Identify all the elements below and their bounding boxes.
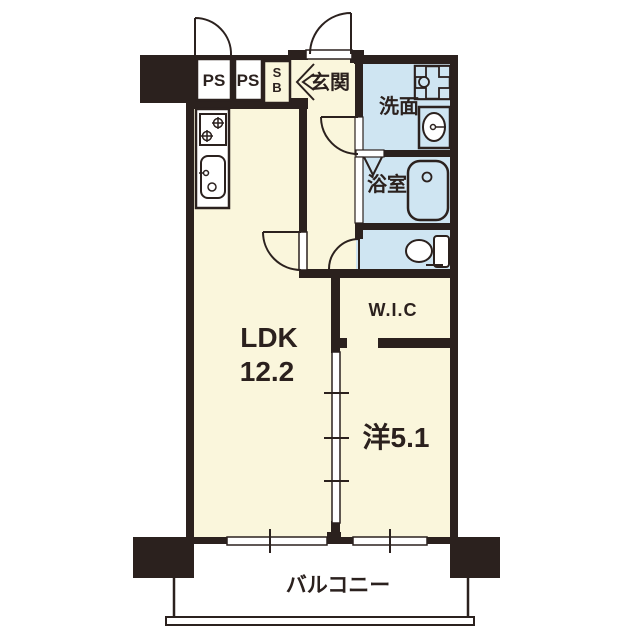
ps2-label: PS bbox=[237, 71, 260, 90]
wall-bottom-right-block bbox=[450, 537, 500, 578]
bath-toilet-fixtures bbox=[406, 161, 449, 267]
floor-plan-drawing: PS PS S B 玄関 洗面 浴室 W.I.C LDK 12.2 洋5.1 バ… bbox=[0, 0, 640, 640]
toilet-bowl bbox=[406, 240, 432, 262]
wall-bottom-left-block bbox=[133, 537, 194, 578]
balcony-label: バルコニー bbox=[286, 574, 391, 597]
bathroom-label: 浴室 bbox=[367, 172, 407, 196]
wall-wic-bottom-stub bbox=[331, 338, 347, 348]
wall-washroom-left bbox=[355, 62, 363, 118]
entrance-label: 玄関 bbox=[310, 70, 350, 94]
washroom-label: 洗面 bbox=[379, 95, 419, 118]
stove-icon bbox=[200, 114, 226, 145]
ldk-door-threshold bbox=[299, 232, 307, 270]
bath-door-threshold bbox=[356, 150, 384, 157]
floor-plan: PS PS S B 玄関 洗面 浴室 W.I.C LDK 12.2 洋5.1 バ… bbox=[0, 0, 640, 640]
wic-label: W.I.C bbox=[369, 300, 418, 320]
wall-entrance-left-stub bbox=[288, 50, 308, 60]
kitchen-sink-icon bbox=[201, 156, 225, 198]
balcony-window-ldk bbox=[227, 537, 327, 545]
wall-toilet-left-stub bbox=[355, 230, 363, 239]
shoe-box-label-s: S bbox=[273, 65, 282, 80]
wall-wic-bottom bbox=[378, 338, 450, 348]
shoe-box-label-b: B bbox=[272, 80, 281, 95]
wall-bath-top bbox=[384, 150, 450, 157]
bathtub-drain bbox=[423, 173, 432, 182]
bathtub-icon bbox=[408, 161, 448, 220]
western-room-label: 洋5.1 bbox=[363, 421, 430, 453]
washroom-fixtures bbox=[415, 66, 450, 148]
wall-bath-toilet bbox=[355, 223, 450, 230]
ldk-label: LDK bbox=[240, 322, 298, 353]
entrance-door-threshold bbox=[306, 50, 352, 59]
wall-hall-bottom bbox=[299, 269, 456, 278]
washroom-door-threshold bbox=[355, 117, 363, 155]
wall-left bbox=[186, 55, 194, 544]
ps1-label: PS bbox=[203, 71, 226, 90]
ldk-size-label: 12.2 bbox=[240, 356, 295, 387]
wall-hall-kitchen bbox=[299, 98, 307, 232]
wall-top-left-block bbox=[140, 55, 194, 103]
wall-washroom-top bbox=[354, 55, 456, 64]
balcony-railing bbox=[166, 617, 474, 625]
wall-window-center-stub bbox=[327, 532, 341, 544]
bath-partition-wall bbox=[355, 157, 363, 223]
kitchen-unit bbox=[196, 109, 229, 208]
toilet-tank bbox=[434, 236, 449, 267]
